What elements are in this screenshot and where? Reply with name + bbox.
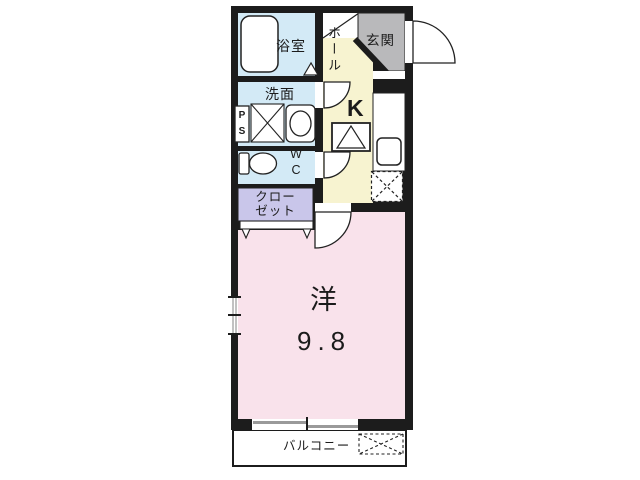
closet-label-line2: ゼット (238, 204, 313, 218)
wc-label: WC (288, 146, 304, 179)
balcony-label: バルコニー (283, 439, 350, 453)
bathtub (241, 16, 278, 72)
hall-label: ホール (325, 26, 340, 86)
balcony-window (252, 417, 358, 431)
washing-machine-space (251, 104, 284, 142)
basin (286, 105, 315, 142)
main-room-type-label: 洋 (310, 285, 337, 316)
washroom-label: 洗面 (265, 86, 295, 102)
closet-label-line1: クロー (238, 190, 313, 204)
refrigerator-space (372, 172, 403, 202)
toilet-bowl (239, 153, 277, 174)
entrance-label: 玄関 (366, 33, 395, 49)
outdoor-unit-space (359, 434, 403, 454)
floor-plan-drawing (0, 0, 640, 480)
wc-doorway (315, 152, 323, 178)
kitchen-label: K (347, 95, 364, 121)
bathroom-label: 浴室 (276, 38, 306, 54)
pipe-space-label: PS (236, 108, 248, 139)
kitchen-entrance-wall (373, 79, 405, 93)
entrance-door-swing (413, 21, 455, 63)
stove (332, 123, 370, 151)
washroom-doorway (315, 82, 323, 108)
kitchen-sink (377, 138, 401, 165)
entrance-doorway (405, 21, 413, 63)
floor-plan-canvas: 浴室 洗面 WC PS クロー ゼット ホール 玄関 K 洋 9.8 バルコニー (0, 0, 640, 480)
main-room-doorway (315, 203, 351, 212)
main-room-size-label: 9.8 (297, 327, 351, 357)
entrance-step (373, 71, 405, 79)
closet-label: クロー ゼット (238, 190, 313, 219)
